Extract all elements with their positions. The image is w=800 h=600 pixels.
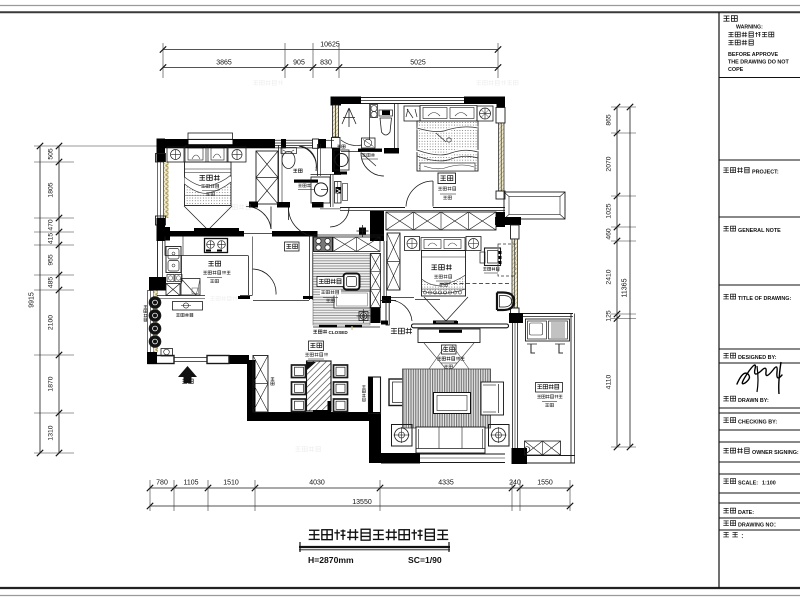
- svg-text:2410: 2410: [606, 269, 613, 284]
- svg-text:865: 865: [606, 114, 613, 126]
- svg-text:460: 460: [606, 228, 613, 240]
- svg-text:CHECKING BY:: CHECKING BY:: [738, 420, 777, 426]
- svg-text:1310: 1310: [48, 425, 55, 440]
- svg-text:4110: 4110: [606, 374, 613, 389]
- svg-text:1805: 1805: [48, 182, 55, 197]
- svg-text:2100: 2100: [48, 315, 55, 330]
- svg-text:WARNING:: WARNING:: [736, 25, 763, 31]
- svg-text:470: 470: [48, 219, 55, 231]
- svg-text:DATE:: DATE:: [738, 510, 754, 516]
- svg-text:1510: 1510: [223, 480, 239, 487]
- svg-text:DESIGNED BY:: DESIGNED BY:: [738, 355, 777, 361]
- svg-text:1:100: 1:100: [762, 481, 776, 487]
- svg-text:830: 830: [320, 60, 332, 67]
- svg-text:1105: 1105: [183, 480, 198, 487]
- svg-text:415: 415: [48, 233, 55, 245]
- svg-text:11365: 11365: [622, 278, 629, 297]
- svg-text:505: 505: [48, 148, 55, 160]
- svg-text:780: 780: [156, 480, 168, 487]
- svg-text:SCALE:: SCALE:: [738, 481, 758, 487]
- svg-text:：: ：: [741, 534, 746, 540]
- svg-text:OWNER SIGNING:: OWNER SIGNING:: [752, 450, 799, 456]
- svg-text:4030: 4030: [309, 480, 325, 487]
- svg-text:H=2870mm: H=2870mm: [308, 555, 354, 565]
- svg-text:CLOSED: CLOSED: [329, 330, 349, 335]
- svg-text:10625: 10625: [320, 42, 340, 49]
- svg-text:TITLE OF DRAWING:: TITLE OF DRAWING:: [738, 296, 792, 302]
- svg-text:125: 125: [606, 310, 613, 322]
- svg-text:1025: 1025: [606, 203, 613, 218]
- svg-text:5025: 5025: [410, 60, 426, 67]
- svg-text:3865: 3865: [216, 60, 232, 67]
- svg-text:240: 240: [509, 480, 521, 487]
- svg-text:GENERAL NOTE: GENERAL NOTE: [738, 228, 781, 234]
- svg-text:4335: 4335: [438, 480, 454, 487]
- svg-text:PROJECT:: PROJECT:: [752, 170, 779, 176]
- svg-text:THE DRAWING DO NOT: THE DRAWING DO NOT: [728, 60, 789, 66]
- svg-text:955: 955: [48, 254, 55, 266]
- svg-text:BEFORE APPROVE: BEFORE APPROVE: [728, 52, 779, 58]
- svg-text:13550: 13550: [352, 499, 372, 506]
- svg-text:9915: 9915: [29, 292, 36, 308]
- svg-text:2070: 2070: [606, 156, 613, 171]
- svg-text:485: 485: [48, 277, 55, 289]
- svg-text:COPE: COPE: [728, 67, 744, 73]
- svg-text:905: 905: [293, 60, 305, 67]
- svg-text:SC=1/90: SC=1/90: [408, 555, 442, 565]
- svg-text:1550: 1550: [537, 480, 553, 487]
- svg-text:DRAWN BY:: DRAWN BY:: [738, 398, 769, 404]
- svg-text:1870: 1870: [48, 376, 55, 391]
- svg-text:DRAWING NO：: DRAWING NO：: [738, 523, 779, 529]
